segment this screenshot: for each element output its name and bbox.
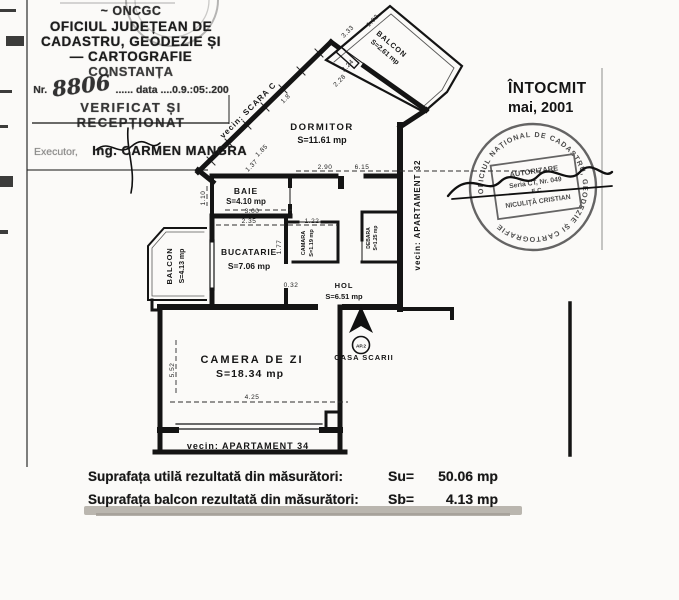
dim-label: 6.15 xyxy=(355,164,370,171)
stamp-number-line: Nr. 8806 ...... data ....0.9.:05:.200 xyxy=(30,79,232,96)
executor-name: Ing. CARMEN MANGRA xyxy=(92,143,247,158)
stamp-nr-dots: ...... xyxy=(116,84,134,96)
stamp-received-line: VERIFICAT ȘI RECEPȚIONAT xyxy=(30,100,232,130)
room-name-dormitor: DORMITOR xyxy=(290,122,354,133)
room-area-dormitor: S=11.61 mp xyxy=(297,135,347,145)
summary-value-su: 50.06 mp xyxy=(424,468,498,484)
intocmit-label: ÎNTOCMIT xyxy=(508,80,587,98)
room-area-camara: S=1.19 mp xyxy=(309,229,315,257)
margin-marks xyxy=(0,9,24,234)
room-name-debara: DEBARA xyxy=(366,227,372,249)
stamp-org-line2: CADASTRU, GEODEZIE ȘI xyxy=(30,34,232,49)
dim-label: 1.8 xyxy=(280,93,292,105)
stamp-date-value: ....0.9.:05:.200 xyxy=(160,84,228,96)
dim-label: 0.32 xyxy=(284,282,299,289)
dim-label: 3.00 xyxy=(245,208,260,215)
room-name-bucatarie: BUCATARIE xyxy=(221,247,277,257)
stamp-executor-line: Executor, Ing. CARMEN MANGRA xyxy=(30,142,232,160)
scanned-cadastral-document: 1.85 1.37 1.10 3.00 2.35 1.22 1.77 2.90 … xyxy=(0,0,679,600)
summary-value-sb: 4.13 mp xyxy=(424,491,498,507)
stamp-org-line3: — CARTOGRAFIE xyxy=(30,49,232,64)
dim-label: 4.25 xyxy=(245,394,260,401)
dim-label: 2.28 xyxy=(332,73,347,88)
intocmit-date: mai, 2001 xyxy=(508,100,587,116)
neighbor-apartament-34: vecin: APARTAMENT 34 xyxy=(187,441,309,451)
registration-stamp-block: ~ ONCGC OFICIUL JUDEȚEAN DE CADASTRU, GE… xyxy=(30,4,232,160)
room-name-baie: BAIE xyxy=(234,186,258,196)
dim-label: 2.90 xyxy=(318,164,333,171)
room-name-camara: CAMARA xyxy=(301,231,307,255)
room-area-balcon-left: S=4.13 mp xyxy=(179,249,186,284)
apartment-badge-text: AP.2 xyxy=(356,344,366,350)
room-area-debara: S=1.25 mp xyxy=(373,226,379,251)
dim-label: 1.77 xyxy=(276,240,283,255)
room-area-camera-de-zi: S=18.34 mp xyxy=(216,368,284,380)
neighbor-apartament-32: vecin: APARTAMENT 32 xyxy=(413,160,422,271)
dim-label: 1.10 xyxy=(200,191,207,206)
casa-scarii-label: CASA SCARII xyxy=(334,353,393,362)
room-name-balcon-left: BALCON xyxy=(165,248,174,285)
room-area-bucatarie: S=7.06 mp xyxy=(228,261,270,271)
summary-label-su: Suprafața utilă rezultată din măsurători… xyxy=(88,469,388,484)
executor-label: Executor, xyxy=(34,146,78,158)
summary-row-balcony-area: Suprafața balcon rezultată din măsurător… xyxy=(88,491,558,514)
intocmit-block: ÎNTOCMIT mai, 2001 xyxy=(508,80,587,116)
room-name-camera-de-zi: CAMERA DE ZI xyxy=(200,354,303,366)
dim-label: 1.22 xyxy=(305,218,320,225)
dim-label: 5.52 xyxy=(169,363,176,378)
room-area-hol: S=6.51 mp xyxy=(325,292,363,301)
stamp-date-label: data xyxy=(136,84,158,96)
dim-label: 1.37 xyxy=(244,158,259,173)
stamp-org-oncgc: ~ ONCGC xyxy=(30,4,232,19)
north-arrow-icon xyxy=(349,306,373,333)
summary-key-su: Su= xyxy=(388,468,424,484)
room-area-baie: S=4.10 mp xyxy=(226,197,266,206)
apartment-badge: AP.2 xyxy=(353,337,370,354)
stamp-org-line1: OFICIUL JUDEȚEAN DE xyxy=(30,19,232,34)
area-summary: Suprafața utilă rezultată din măsurători… xyxy=(88,468,558,514)
summary-row-useful-area: Suprafața utilă rezultată din măsurători… xyxy=(88,468,558,491)
dim-label: 1.85 xyxy=(254,143,269,158)
stamp-nr-prefix: Nr. xyxy=(33,84,47,96)
summary-label-sb: Suprafața balcon rezultată din măsurător… xyxy=(88,492,388,507)
room-name-hol: HOL xyxy=(335,281,354,290)
authorization-round-stamp: OFICIUL NAȚIONAL DE CADASTRU, GEODEZIE Ș… xyxy=(462,116,604,258)
summary-key-sb: Sb= xyxy=(388,491,424,507)
dim-label: 2.35 xyxy=(242,218,257,225)
